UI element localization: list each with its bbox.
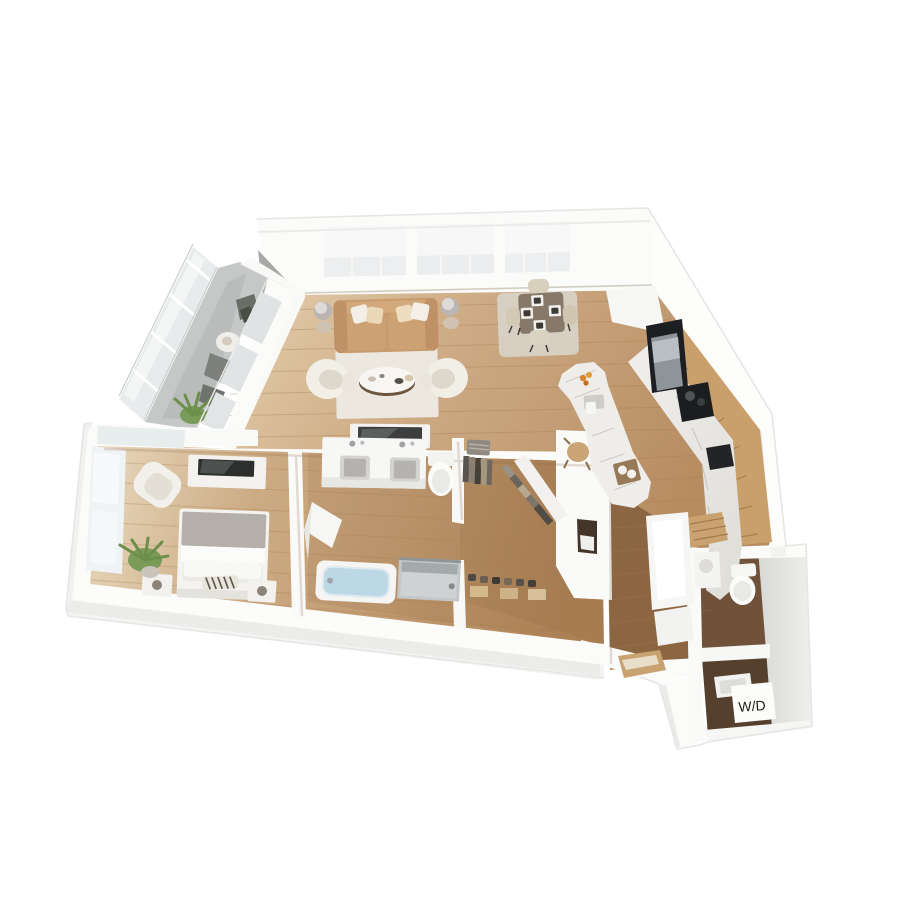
svg-text:W/D: W/D — [738, 697, 766, 715]
